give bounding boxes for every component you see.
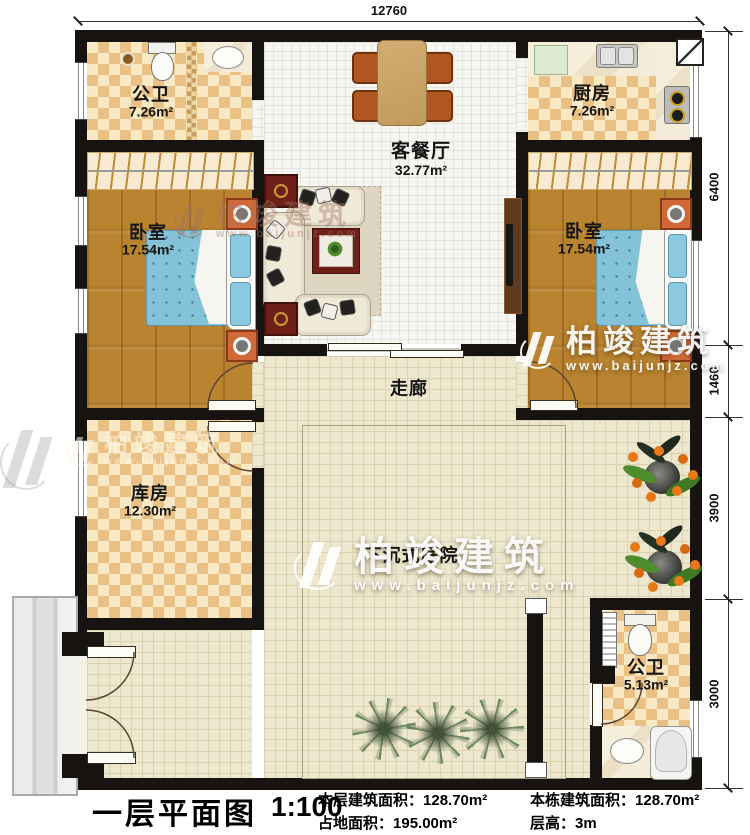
room-name: 下沉式庭院 xyxy=(364,546,459,565)
room-name: 客餐厅 xyxy=(391,142,451,163)
room-label-bedroom-left: 卧室 17.54m² xyxy=(122,224,174,259)
room-area: 32.77m² xyxy=(391,163,451,178)
room-name: 公卫 xyxy=(129,86,173,105)
room-label-corridor: 走廊 xyxy=(390,379,428,398)
room-label-living: 客餐厅 32.77m² xyxy=(391,142,451,178)
room-name: 库房 xyxy=(124,485,176,504)
room-label-courtyard: 下沉式庭院 xyxy=(364,546,459,565)
room-area: 7.26m² xyxy=(129,105,173,120)
fruit-plant-icon xyxy=(620,444,700,512)
room-label-bath-top: 公卫 7.26m² xyxy=(129,86,173,121)
room-name: 卧室 xyxy=(558,223,610,242)
room-area: 5.13m² xyxy=(624,678,668,693)
room-area: 17.54m² xyxy=(122,243,174,258)
room-label-bath-bottom: 公卫 5.13m² xyxy=(624,659,668,694)
room-name: 公卫 xyxy=(624,659,668,678)
floor-plan: 公卫 7.26m² 厨房 7.26m² 客餐厅 32.77m² 卧室 17.54… xyxy=(0,0,750,835)
plant-icon xyxy=(326,240,344,258)
room-label-storage: 库房 12.30m² xyxy=(124,485,176,520)
room-name: 走廊 xyxy=(390,379,428,398)
room-area: 7.26m² xyxy=(570,104,614,119)
fruit-plant-icon xyxy=(622,534,702,602)
room-area: 12.30m² xyxy=(124,504,176,519)
room-label-kitchen: 厨房 7.26m² xyxy=(570,85,614,120)
room-name: 卧室 xyxy=(122,224,174,243)
room-name: 厨房 xyxy=(570,85,614,104)
room-area: 17.54m² xyxy=(558,242,610,257)
fern-plant-icon xyxy=(460,698,524,760)
room-label-bedroom-right: 卧室 17.54m² xyxy=(558,223,610,258)
